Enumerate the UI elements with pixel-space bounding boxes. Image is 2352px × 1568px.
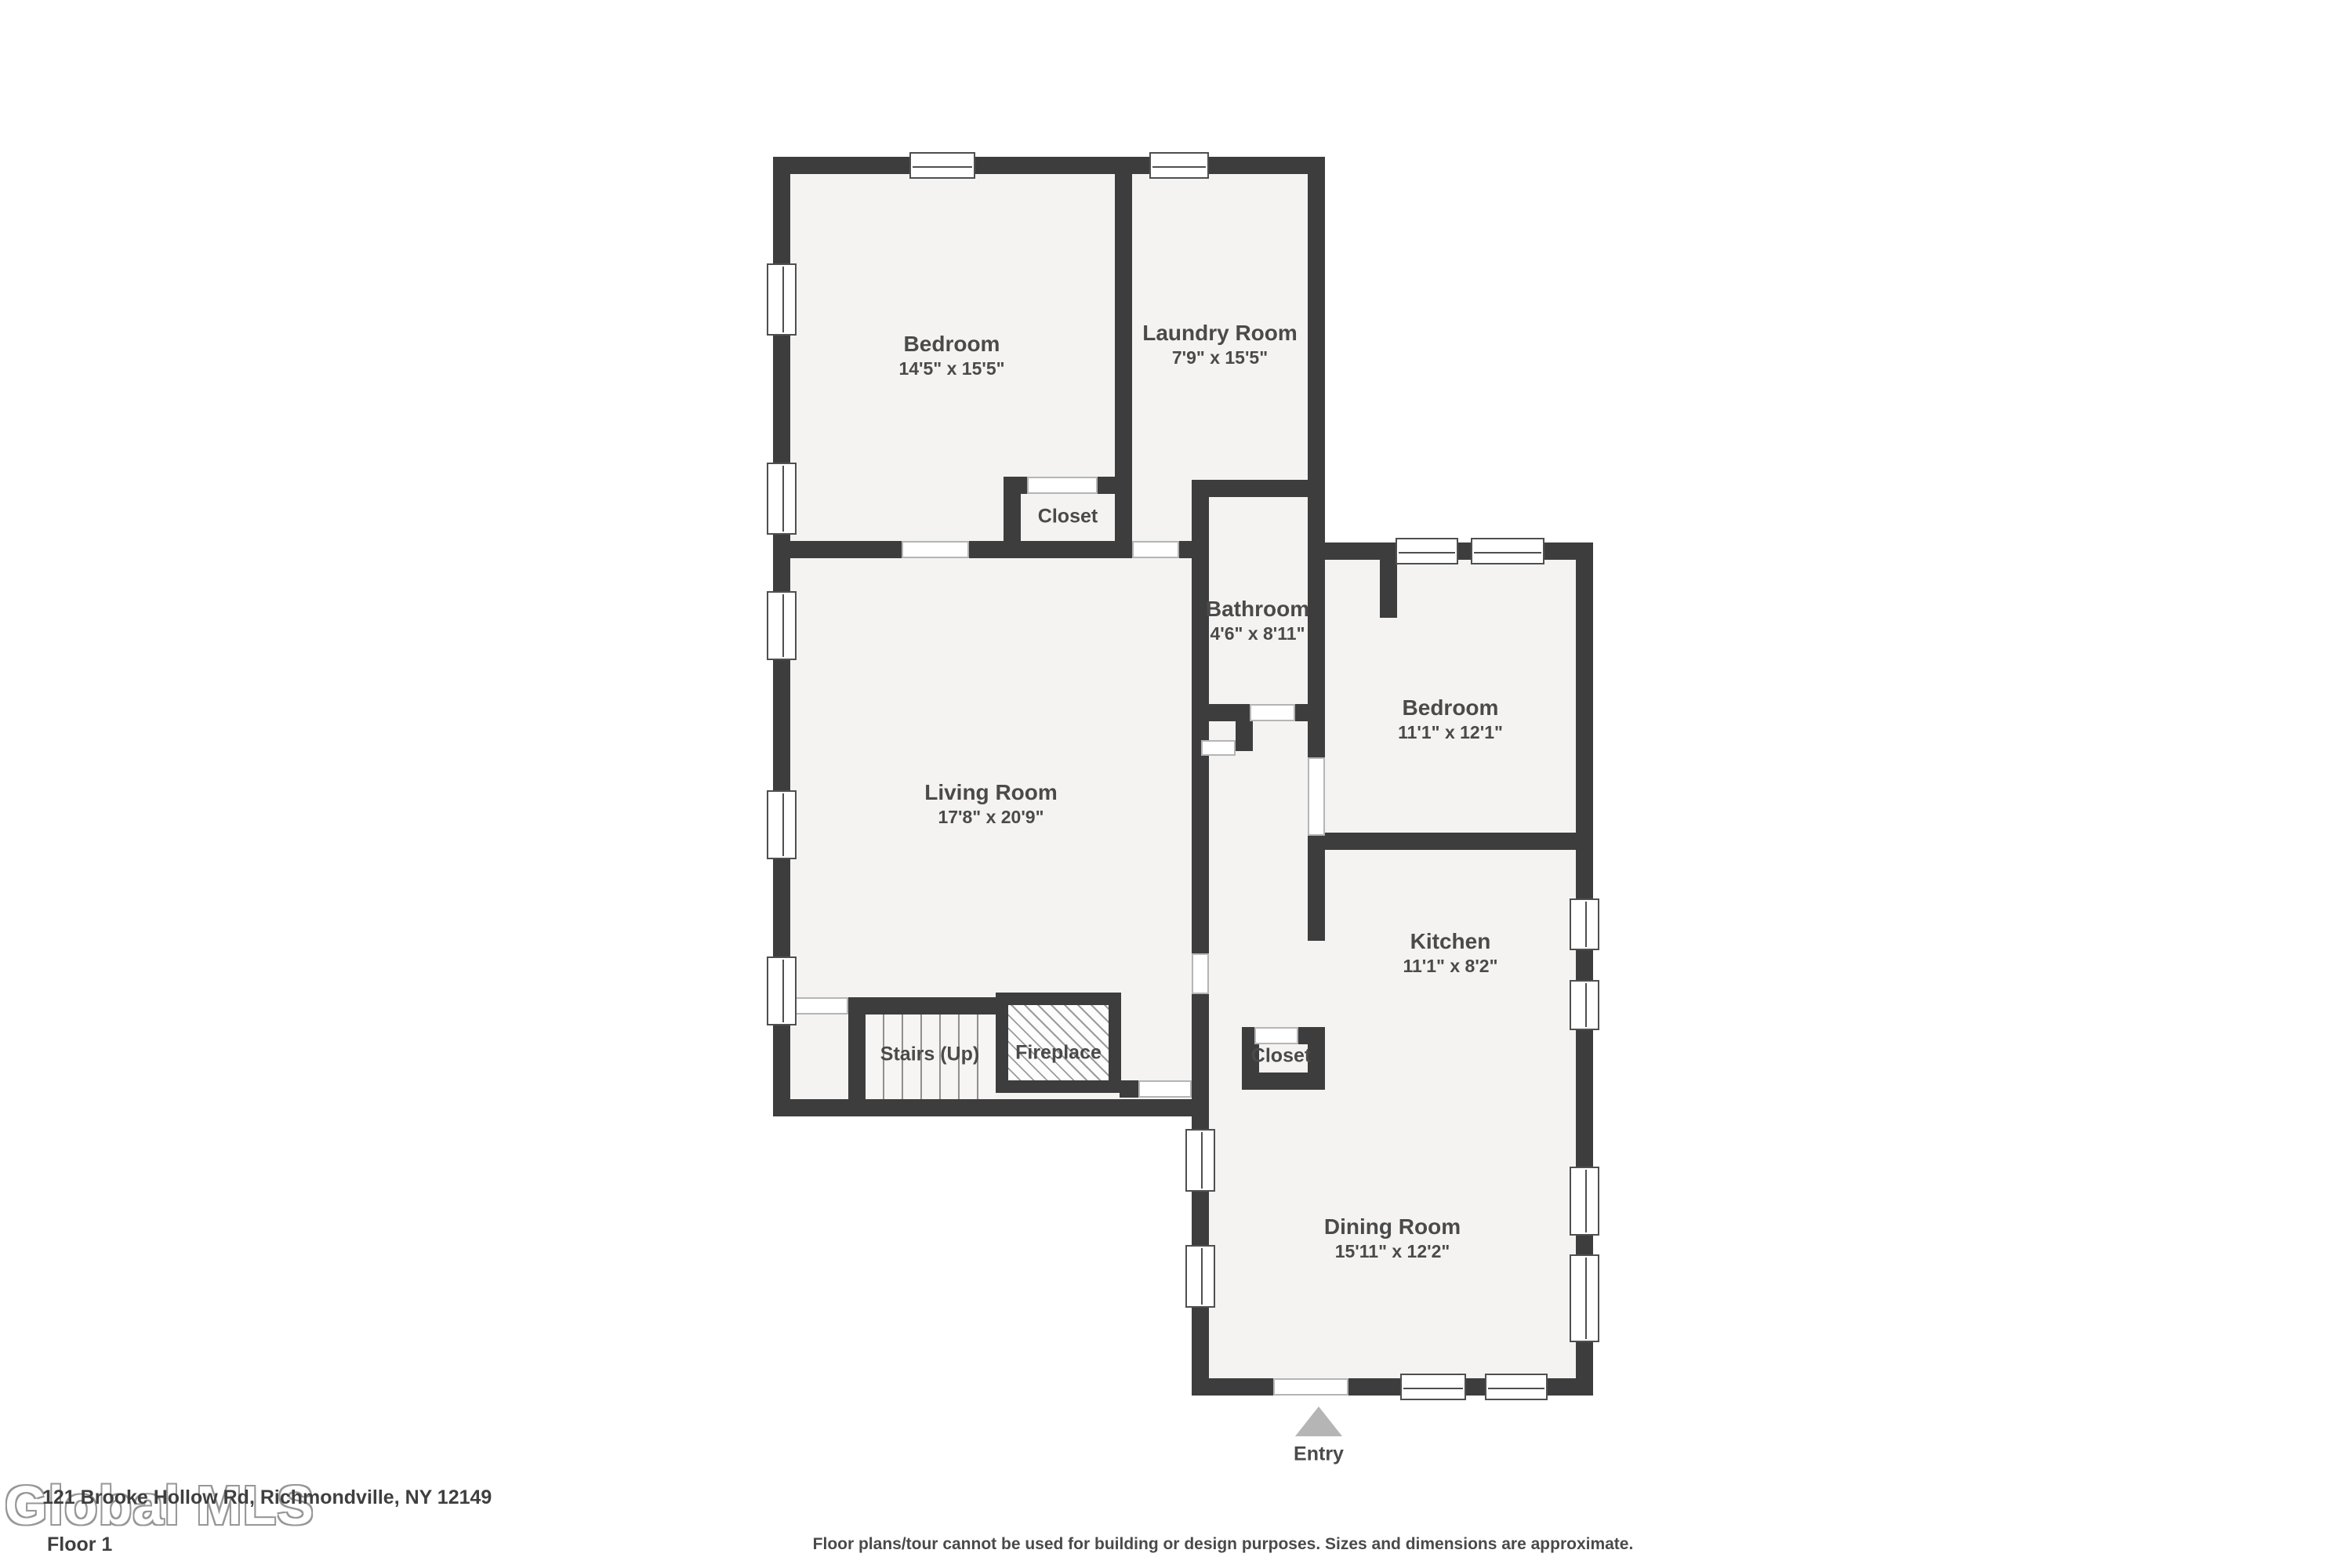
wall	[1236, 721, 1253, 751]
wall	[1242, 1073, 1325, 1090]
room-label-kitchen: Kitchen 11'1" x 8'2"	[1403, 928, 1497, 978]
window	[1570, 898, 1599, 950]
entry-arrow-icon	[1295, 1406, 1342, 1436]
wall	[1120, 1080, 1138, 1098]
room-dims: 7'9" x 15'5"	[1142, 347, 1298, 370]
window	[767, 263, 797, 336]
wall	[1192, 480, 1308, 497]
room-name: Bedroom	[898, 331, 1004, 358]
disclaimer-text: Floor plans/tour cannot be used for buil…	[94, 1535, 2352, 1554]
wall	[773, 157, 1325, 174]
door-opening	[1254, 1027, 1298, 1044]
room-name: Closet	[1251, 1044, 1311, 1069]
window	[1400, 1374, 1466, 1400]
door-opening	[1250, 704, 1295, 721]
room-dims: 14'5" x 15'5"	[898, 358, 1004, 381]
window	[767, 790, 797, 859]
room-dims: 4'6" x 8'11"	[1206, 623, 1309, 646]
wall	[1308, 836, 1325, 941]
wall	[1380, 560, 1397, 618]
wall	[1115, 157, 1132, 558]
window	[1396, 538, 1458, 564]
wall	[1192, 994, 1209, 1116]
wall	[848, 997, 996, 1014]
room-name: Kitchen	[1403, 928, 1497, 956]
door-opening	[1132, 541, 1179, 558]
window	[909, 152, 975, 179]
door-opening	[1192, 953, 1209, 994]
room-dims: 11'1" x 12'1"	[1398, 722, 1503, 745]
wall	[1308, 833, 1593, 850]
window	[767, 591, 797, 660]
room-name: Living Room	[924, 779, 1058, 807]
property-address: 121 Brooke Hollow Rd, Richmondville, NY …	[42, 1486, 492, 1508]
wall	[969, 541, 1115, 558]
room-label-closet1: Closet	[1038, 505, 1098, 529]
wall	[773, 541, 902, 558]
wall	[773, 1099, 1209, 1116]
window	[1185, 1245, 1215, 1308]
room-label-laundry: Laundry Room 7'9" x 15'5"	[1142, 320, 1298, 370]
room-label-fireplace: Fireplace	[1015, 1041, 1102, 1065]
entry-door-opening	[1273, 1378, 1348, 1396]
room-dims: 17'8" x 20'9"	[924, 807, 1058, 829]
window	[1149, 152, 1209, 179]
room-name: Bedroom	[1398, 695, 1503, 722]
window	[1471, 538, 1544, 564]
room-name: Closet	[1038, 505, 1098, 529]
window	[1485, 1374, 1548, 1400]
door-opening	[1201, 740, 1236, 756]
window	[1185, 1129, 1215, 1192]
wall	[1192, 704, 1250, 721]
door-opening	[793, 997, 848, 1014]
room-label-living: Living Room 17'8" x 20'9"	[924, 779, 1058, 829]
room-label-closet2: Closet	[1251, 1044, 1311, 1069]
room-floor	[1192, 480, 1325, 1116]
window	[1570, 980, 1599, 1030]
window	[767, 956, 797, 1025]
room-dims: 15'11" x 12'2"	[1324, 1241, 1461, 1264]
room-label-bedroom1: Bedroom 14'5" x 15'5"	[898, 331, 1004, 381]
room-name: Dining Room	[1324, 1214, 1461, 1241]
entry-label: Entry	[1294, 1443, 1344, 1467]
floor-plan-page: Bedroom 14'5" x 15'5" Laundry Room 7'9" …	[0, 0, 2352, 1568]
door-opening	[902, 541, 969, 558]
wall	[848, 997, 866, 1116]
room-label-dining: Dining Room 15'11" x 12'2"	[1324, 1214, 1461, 1264]
room-name: Laundry Room	[1142, 320, 1298, 347]
door-opening	[1027, 477, 1098, 494]
wall	[1295, 704, 1325, 721]
room-label-stairs: Stairs (Up)	[880, 1043, 979, 1067]
door-opening	[1308, 757, 1325, 836]
room-dims: 11'1" x 8'2"	[1403, 956, 1497, 978]
window	[1570, 1254, 1599, 1342]
room-name: Stairs (Up)	[880, 1043, 979, 1067]
wall	[1308, 157, 1325, 757]
room-name: Fireplace	[1015, 1041, 1102, 1065]
wall	[1004, 477, 1021, 558]
room-label-bathroom: Bathroom 4'6" x 8'11"	[1206, 596, 1309, 646]
room-label-bedroom2: Bedroom 11'1" x 12'1"	[1398, 695, 1503, 745]
room-name: Bathroom	[1206, 596, 1309, 623]
window	[767, 463, 797, 535]
door-opening	[1138, 1080, 1192, 1098]
window	[1570, 1167, 1599, 1236]
